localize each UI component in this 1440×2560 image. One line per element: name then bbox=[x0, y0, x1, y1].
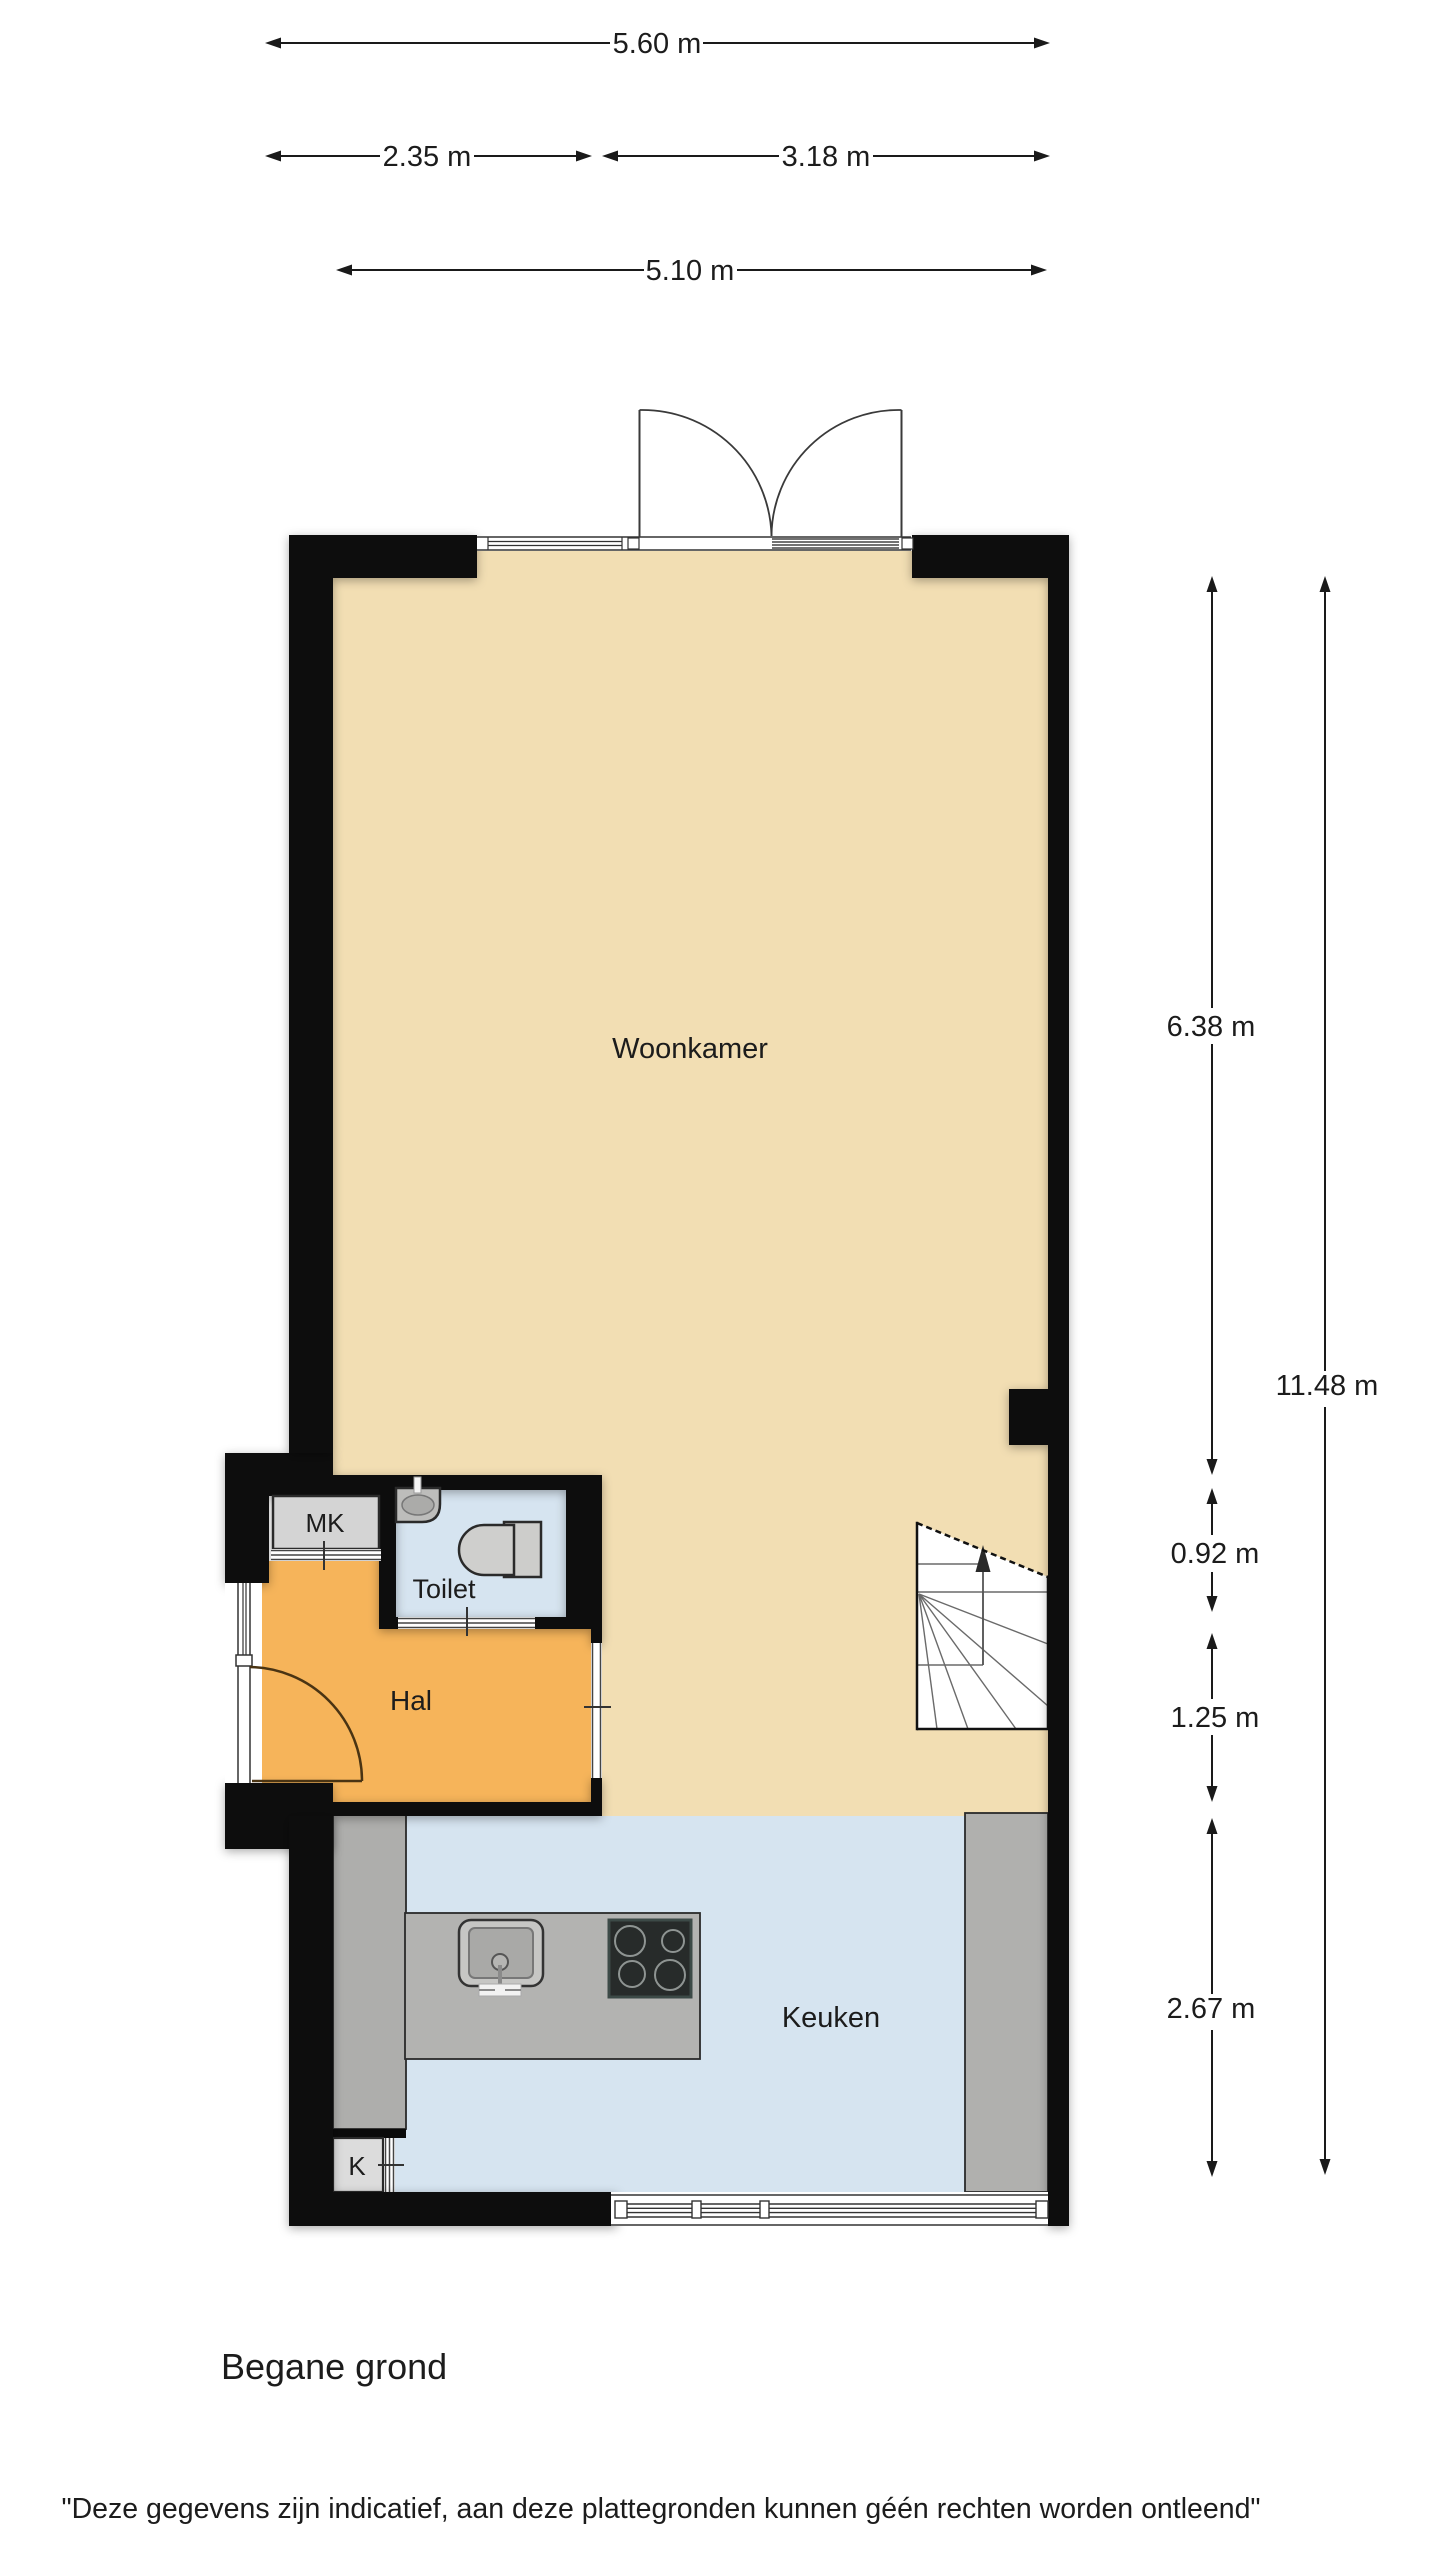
svg-text:K: K bbox=[348, 2151, 366, 2181]
svg-text:Keuken: Keuken bbox=[782, 2002, 880, 2034]
svg-text:3.18 m: 3.18 m bbox=[782, 141, 871, 173]
svg-text:Begane grond: Begane grond bbox=[221, 2346, 447, 2387]
svg-text:6.38 m: 6.38 m bbox=[1167, 1011, 1256, 1043]
svg-text:Hal: Hal bbox=[390, 1685, 432, 1716]
svg-text:5.60 m: 5.60 m bbox=[613, 28, 702, 60]
svg-text:0.92 m: 0.92 m bbox=[1171, 1538, 1260, 1570]
svg-text:MK: MK bbox=[306, 1508, 346, 1538]
svg-text:Woonkamer: Woonkamer bbox=[612, 1033, 768, 1065]
svg-text:Toilet: Toilet bbox=[412, 1574, 476, 1604]
svg-text:11.48 m: 11.48 m bbox=[1276, 1370, 1379, 1402]
svg-text:1.25 m: 1.25 m bbox=[1171, 1702, 1260, 1734]
svg-text:2.35 m: 2.35 m bbox=[383, 141, 472, 173]
svg-text:"Deze gegevens zijn indicatief: "Deze gegevens zijn indicatief, aan deze… bbox=[61, 2493, 1260, 2525]
svg-text:2.67 m: 2.67 m bbox=[1167, 1993, 1256, 2025]
svg-text:5.10 m: 5.10 m bbox=[646, 255, 735, 287]
